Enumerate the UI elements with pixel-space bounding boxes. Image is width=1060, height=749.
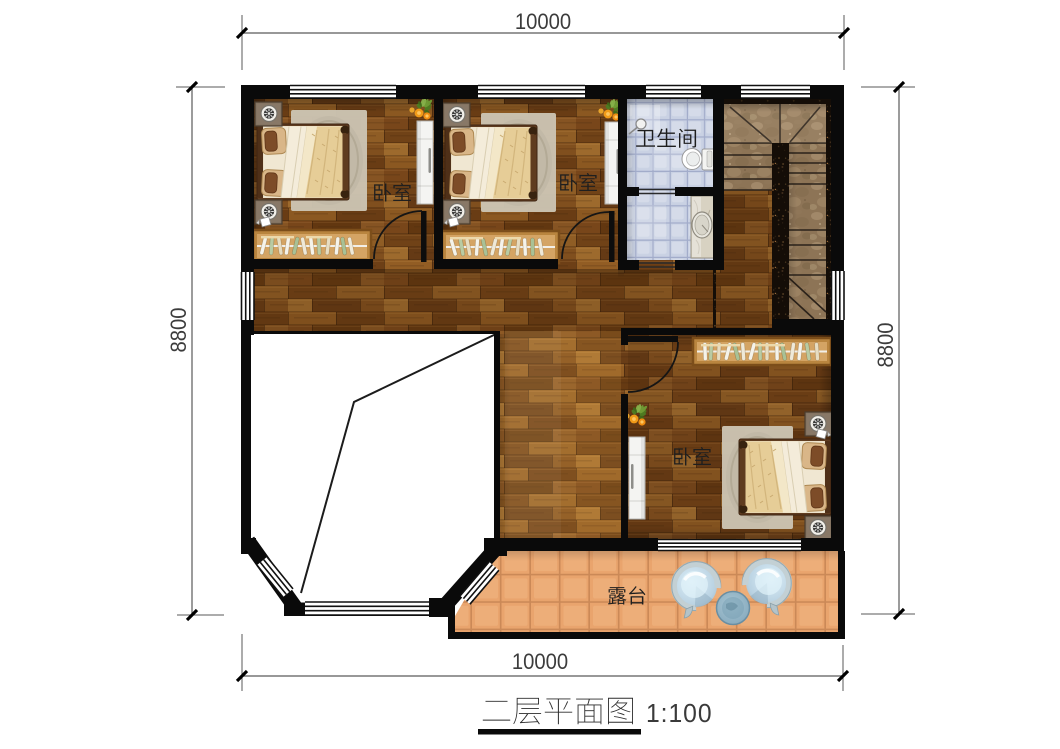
svg-text:8800: 8800 — [167, 307, 191, 352]
svg-text:8800: 8800 — [874, 322, 898, 367]
svg-text:10000: 10000 — [512, 650, 568, 674]
svg-text:10000: 10000 — [515, 10, 571, 34]
svg-text:1:100: 1:100 — [646, 699, 713, 728]
